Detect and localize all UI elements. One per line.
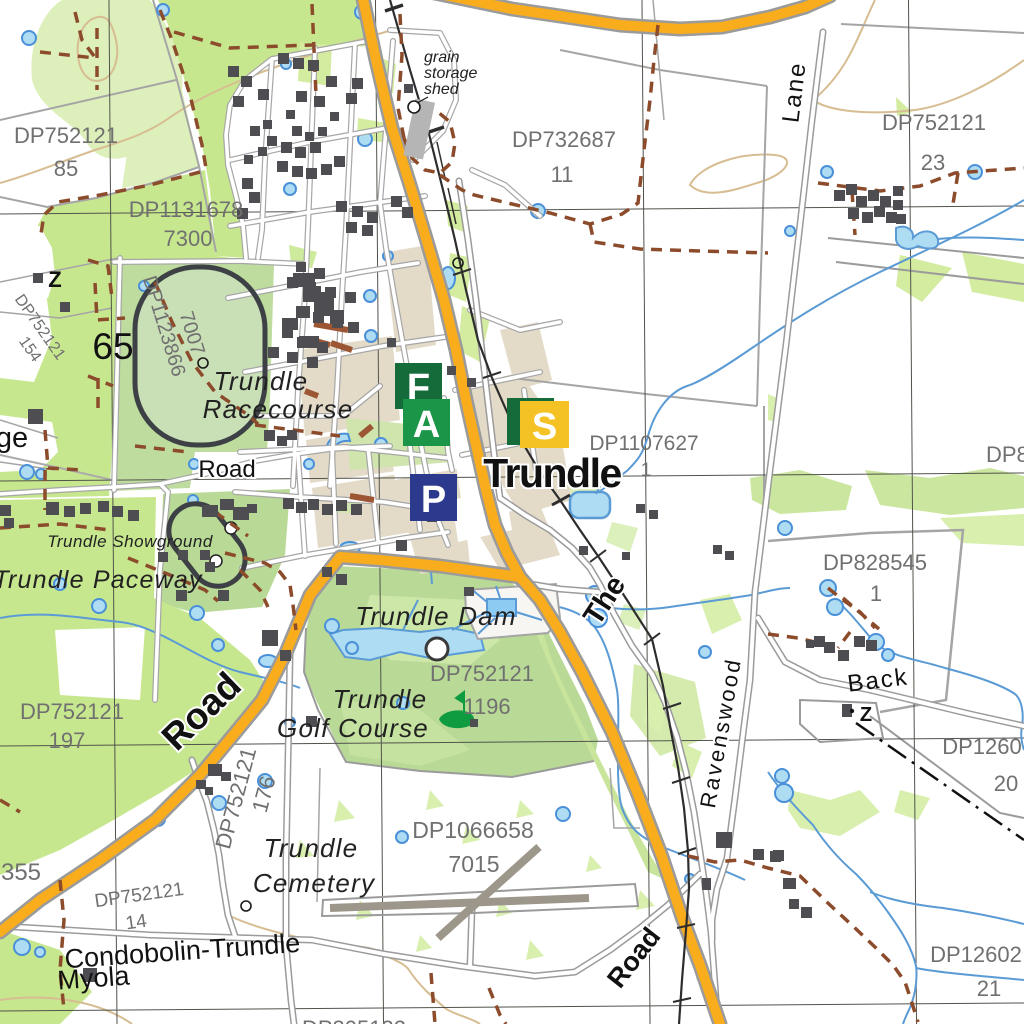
- svg-text:DP752121: DP752121: [20, 699, 124, 724]
- svg-text:grain: grain: [424, 49, 460, 66]
- svg-text:ge: ge: [0, 422, 28, 454]
- svg-text:21: 21: [977, 976, 1001, 1001]
- svg-text:Road: Road: [198, 456, 255, 483]
- svg-text:DP732687: DP732687: [512, 127, 616, 152]
- svg-text:DP752121: DP752121: [882, 110, 986, 135]
- svg-text:DP828545: DP828545: [823, 550, 927, 575]
- svg-text:DP12602: DP12602: [930, 942, 1022, 967]
- svg-text:11: 11: [551, 162, 574, 187]
- svg-text:23: 23: [921, 150, 945, 175]
- svg-text:7015: 7015: [448, 851, 499, 877]
- svg-text:Trundle Paceway: Trundle Paceway: [0, 566, 203, 594]
- svg-text:1: 1: [641, 460, 652, 481]
- svg-text:DP752121: DP752121: [430, 661, 534, 686]
- svg-text:Z: Z: [48, 267, 61, 292]
- svg-text:14: 14: [124, 911, 148, 935]
- svg-text:Trundle: Trundle: [483, 450, 621, 496]
- svg-text:65: 65: [92, 326, 133, 367]
- svg-text:197: 197: [49, 728, 86, 753]
- svg-text:20: 20: [994, 771, 1018, 796]
- svg-text:Racecourse: Racecourse: [203, 394, 354, 424]
- svg-text:355: 355: [1, 859, 41, 886]
- svg-text:1196: 1196: [463, 694, 510, 719]
- svg-text:shed: shed: [424, 81, 460, 98]
- svg-text:DP1066658: DP1066658: [412, 817, 534, 843]
- svg-text:Trundle: Trundle: [264, 833, 359, 863]
- svg-text:DP305132: DP305132: [302, 1016, 406, 1024]
- svg-text:DP752121: DP752121: [14, 123, 118, 148]
- svg-text:7300: 7300: [164, 226, 213, 251]
- svg-text:Trundle Dam: Trundle Dam: [355, 601, 517, 631]
- svg-text:1: 1: [870, 581, 882, 606]
- svg-text:Trundle Showground: Trundle Showground: [47, 532, 213, 551]
- svg-text:Cemetery: Cemetery: [253, 868, 376, 898]
- svg-text:Trundle: Trundle: [214, 366, 309, 396]
- svg-text:DP1131678: DP1131678: [129, 197, 244, 222]
- svg-text:Trundle: Trundle: [333, 684, 428, 714]
- svg-text:85: 85: [54, 156, 78, 181]
- svg-text:Z: Z: [860, 704, 872, 726]
- svg-text:Golf Course: Golf Course: [277, 713, 429, 743]
- svg-text:P: P: [421, 479, 446, 521]
- svg-text:Myola: Myola: [56, 960, 131, 995]
- svg-text:S: S: [532, 406, 557, 448]
- svg-text:DP82: DP82: [986, 442, 1024, 467]
- svg-text:storage: storage: [424, 65, 477, 82]
- svg-text:DP1260: DP1260: [942, 734, 1022, 759]
- svg-text:A: A: [413, 404, 440, 446]
